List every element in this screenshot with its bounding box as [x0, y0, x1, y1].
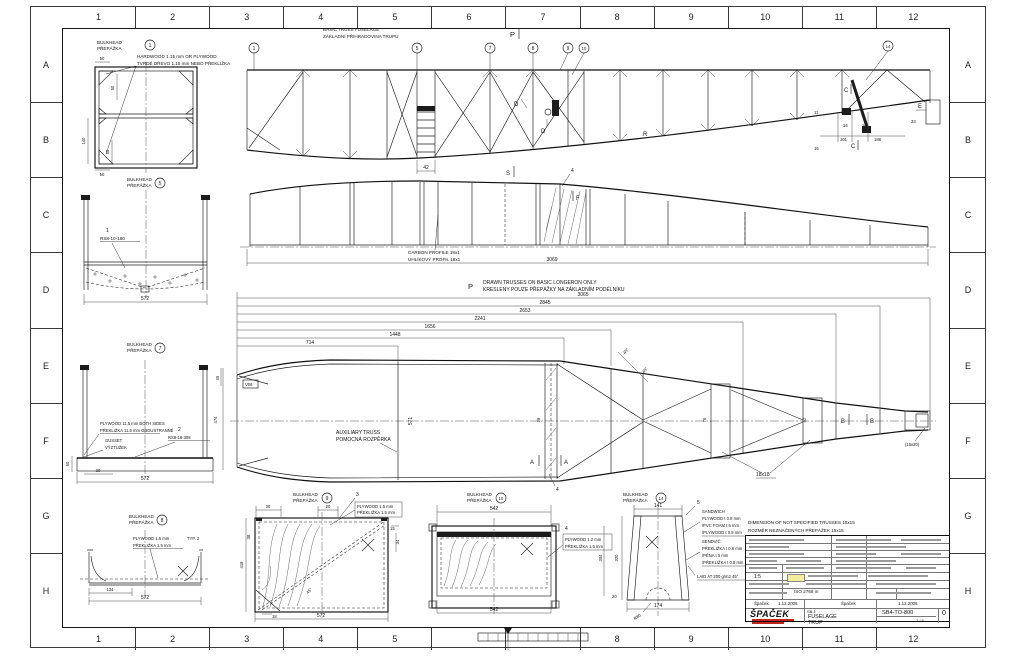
angle-45-2: 45°	[641, 366, 649, 374]
b10-balloon: 10	[499, 496, 504, 501]
svg-text:11: 11	[814, 110, 819, 115]
svg-text:1656: 1656	[424, 324, 435, 330]
svg-text:F: F	[576, 196, 580, 202]
b9-dim-20: 20	[326, 504, 331, 509]
svg-text:DRAWN TRUSSES ON BASIC LONGERO: DRAWN TRUSSES ON BASIC LONGERON ONLY	[483, 280, 597, 286]
b10-dim-542-top: 542	[490, 506, 499, 512]
highlight-cell	[787, 574, 805, 582]
checked-name: Špaček	[841, 601, 856, 606]
svg-text:42: 42	[423, 165, 429, 171]
svg-text:/PŘEKLIŽKA t 0.8 mm: /PŘEKLIŽKA t 0.8 mm	[702, 560, 744, 565]
svg-text:KRESLENY POUZE PŘEPÁŽKY NA ZÁK: KRESLENY POUZE PŘEPÁŽKY NA ZÁKLADNÍM POD…	[483, 285, 625, 293]
b14-title-cz: PŘEPÁŽKA	[623, 496, 648, 503]
detail-mark-e: E	[916, 104, 926, 110]
svg-text:3065: 3065	[577, 292, 588, 298]
svg-text:101: 101	[840, 137, 848, 142]
svg-text:2653: 2653	[519, 308, 530, 314]
b8-note-en: PLYWOOD 1.5 mm	[133, 536, 170, 541]
view1-title-en: BASIC TRUSS FUSELAGE	[323, 27, 379, 32]
bulkhead-5-detail: BULKHEAD PŘEPÁŽKA 5 1 RS8-10-180 572	[81, 177, 210, 305]
blueprint-sheet: 1 2 3 4 5 6 7 8 9 10 11 12 1 2 3 4 5 8 9…	[0, 0, 1024, 659]
note-18x18: 18x18	[722, 440, 810, 478]
svg-text:SENDVIČ: SENDVIČ	[702, 539, 721, 544]
svg-text:1: 1	[253, 46, 256, 52]
wood-panel-hatch	[544, 188, 586, 244]
svg-text:1448: 1448	[389, 332, 400, 338]
b9-wood-grain	[262, 524, 320, 607]
b7-title-cz: PŘEPÁŽKA	[127, 346, 152, 353]
bulkhead-7-detail: BULKHEAD PŘEPÁŽKA 7 PLYWOOD 11.5 mm BOTH…	[65, 342, 223, 484]
b1-dim-140: 140	[81, 137, 86, 145]
svg-text:C: C	[851, 144, 856, 150]
svg-text:C: C	[844, 88, 849, 94]
svg-text:18x18: 18x18	[756, 472, 770, 478]
b9-dim-34: 34	[395, 539, 400, 544]
svg-text:16: 16	[843, 123, 848, 128]
drawn-name: Špaček	[754, 601, 769, 606]
dimension-chain: 3065 2845 2653 2241 1656 1448 714	[237, 292, 930, 411]
svg-text:B: B	[841, 419, 845, 425]
b1-dim-50-mid: 50	[110, 85, 115, 90]
svg-text:ROZMĚR NEZNAČENÝCH PŘEPÁŽEK 15: ROZMĚR NEZNAČENÝCH PŘEPÁŽEK 15x15	[748, 526, 844, 533]
svg-text:S: S	[506, 171, 510, 177]
b1-note-cz: TVRDÉ DŘEVO 1.15 mm NEBO PŘEKLIŽKA	[137, 59, 231, 66]
b5-balloon: 5	[159, 181, 162, 187]
svg-text:LAID AT 200 g/m2 45°: LAID AT 200 g/m2 45°	[697, 574, 739, 579]
svg-text:2241: 2241	[474, 316, 485, 322]
checked-date: 1.12.2006	[898, 601, 918, 606]
svg-text:UHLÍKOVÝ PROFIL 18x1: UHLÍKOVÝ PROFIL 18x1	[408, 256, 461, 262]
svg-text:14: 14	[886, 44, 891, 49]
svg-text:PŘEKLIŽKA t 0.8 mm: PŘEKLIŽKA t 0.8 mm	[702, 546, 743, 551]
item-callout-4: 4	[562, 168, 574, 186]
b9-dim-18: 18	[272, 614, 277, 619]
b7-ref: 2	[178, 427, 181, 433]
svg-text:16: 16	[862, 123, 867, 128]
company-logo: ŠPAČEK	[750, 609, 789, 619]
drawing-title-cz: TRUP	[808, 620, 823, 626]
svg-text:POMOCNÁ ROZPĚRKA: POMOCNÁ ROZPĚRKA	[336, 435, 391, 443]
b9-ref: 3	[356, 492, 359, 498]
view-side-elevation: 4 F CARBON PROFILE 18x1 UHLÍKOVÝ PROFIL …	[240, 168, 936, 266]
balloon-1: 1	[249, 43, 259, 70]
svg-text:8: 8	[532, 46, 535, 52]
svg-text:33: 33	[911, 119, 916, 124]
section-mark-b-left: B	[841, 414, 849, 425]
b9-title-en: BULKHEAD	[293, 492, 318, 497]
b9-title-cz: PŘEPÁŽKA	[293, 496, 318, 503]
b5-title-cz: PŘEPÁŽKA	[127, 181, 152, 188]
drawn-date: 1.12.2006	[778, 601, 798, 606]
b5-part: RS8-10-180	[100, 236, 125, 241]
b7-balloon: 7	[159, 346, 162, 352]
bulkhead-8-detail: BULKHEAD PŘEPÁŽKA 8 PLYWOOD 1.5 mm PŘEKL…	[80, 514, 210, 605]
balloon-8: 8	[528, 43, 538, 70]
centering-ruler	[478, 628, 588, 650]
section-mark-p: P	[510, 29, 519, 39]
revision: 0	[942, 610, 946, 617]
svg-text:714: 714	[306, 340, 315, 346]
b1-dim-50-top: 50	[100, 56, 105, 61]
b1-dim-50-bottom: 50	[100, 172, 105, 177]
svg-text:D: D	[541, 129, 546, 135]
balloon-14: 14	[866, 41, 893, 80]
svg-text:D: D	[514, 102, 519, 108]
svg-text:P: P	[510, 30, 515, 39]
sheet-number: 1 / 5	[916, 618, 924, 623]
section-mark-f: F	[573, 191, 580, 202]
b10-dim-304: 304	[598, 554, 603, 562]
b14-r80: R80	[633, 612, 643, 621]
svg-text:/PVC FOAM t 5 mm: /PVC FOAM t 5 mm	[702, 523, 740, 528]
svg-text:AUXILIARY TRUSS: AUXILIARY TRUSS	[336, 430, 381, 436]
b9-note-cz: PŘEKLIŽKA 1.5 mm	[357, 510, 395, 515]
b7-gusset-en: GUSSET	[105, 438, 123, 443]
b14-title-en: BULKHEAD	[623, 492, 648, 497]
mark-r: R	[643, 132, 648, 138]
b8-title-en: BULKHEAD	[129, 514, 154, 519]
b7-gusset-cz: VÝZTUŽEK	[105, 445, 127, 450]
svg-text:P: P	[468, 282, 473, 291]
svg-text:4: 4	[571, 168, 574, 174]
aux-truss-note: AUXILIARY TRUSS POMOCNÁ ROZPĚRKA	[336, 430, 397, 452]
b9-dim-30: 30	[266, 504, 271, 509]
detail-mark-d1: D	[514, 99, 527, 108]
b14-dim-320: 320	[614, 554, 619, 562]
svg-text:16: 16	[814, 146, 819, 151]
b8-dim-572: 572	[141, 595, 150, 601]
b10-ref: 4	[565, 526, 568, 532]
bulkhead-9-detail: BULKHEAD PŘEPÁŽKA 9 3 PLYWOOD 1.5 mm PŘE…	[239, 492, 402, 622]
svg-text:B: B	[870, 419, 874, 425]
svg-text:2845: 2845	[539, 300, 550, 306]
view-basic-truss-side: BASIC TRUSS FUSELAGE ZÁKLADNÍ PŘÍHRADOVI…	[247, 27, 940, 177]
b7-part: RS8-18-308	[168, 435, 191, 440]
scale-value: 1:5	[754, 574, 761, 580]
bulkhead-10-detail: BULKHEAD PŘEPÁŽKA 10 542 542 4 PLYWOOD 1…	[429, 492, 612, 614]
b7-title-en: BULKHEAD	[127, 342, 152, 347]
b9-dim-15: 15	[390, 526, 395, 531]
balloon-9: 9	[560, 43, 573, 70]
section-mark-b-right: B	[867, 414, 874, 425]
b1-dim-50-low: 50	[105, 149, 110, 154]
company-address-line	[752, 622, 784, 624]
b1-title-cz: PŘEPÁŽKA	[97, 44, 122, 51]
b9-note-en: PLYWOOD 1.5 mm	[357, 504, 394, 509]
b7-dim-572: 572	[141, 476, 150, 482]
b9-balloon: 9	[326, 496, 329, 502]
svg-text:/PLYWOOD t 0.8 mm: /PLYWOOD t 0.8 mm	[702, 530, 742, 535]
b8-title-cz: PŘEPÁŽKA	[129, 518, 154, 525]
tolerance-value: ISO 2768 m	[794, 589, 819, 594]
b5-dim-572: 572	[141, 296, 150, 302]
b7-dim-60: 60	[65, 461, 70, 466]
dim-76: 76	[702, 417, 707, 422]
svg-text:V06: V06	[245, 382, 253, 387]
dim-42: 42	[417, 160, 435, 174]
b10-title-en: BULKHEAD	[467, 492, 492, 497]
b7-dim-474: 474	[213, 416, 218, 424]
b1-note-en: HARDWOOD 1.15 mm OR PLYWOOD	[137, 54, 217, 59]
title-block: 1:5 ISO 2768 m Špaček 1.12.2006 Špaček 1…	[745, 535, 950, 622]
v06-flag: V06	[243, 380, 258, 388]
b10-wood-grain	[444, 540, 496, 587]
carbon-profile-note: CARBON PROFILE 18x1 UHLÍKOVÝ PROFIL 18x1	[408, 215, 461, 262]
svg-text:E: E	[918, 104, 922, 110]
detail-mark-d2: D	[541, 119, 547, 135]
svg-text:PLYWOOD t 0.8 mm: PLYWOOD t 0.8 mm	[702, 516, 741, 521]
svg-text:A: A	[530, 460, 534, 466]
b9-dim-572: 572	[317, 613, 326, 619]
svg-text:7: 7	[489, 46, 492, 52]
b9-dim-418: 418	[239, 561, 244, 569]
b10-title-cz: PŘEPÁŽKA	[467, 496, 492, 503]
general-note-15x15: DIMENSION OF NOT SPECIFIED TRUSSES 15x15…	[748, 520, 855, 533]
b7-note-en: PLYWOOD 11.5 mm BOTH SIDES	[100, 421, 165, 426]
section-mark-a-left: A	[530, 455, 539, 466]
b14-dim-20: 20	[612, 594, 617, 599]
bulkhead-14-detail: BULKHEAD PŘEPÁŽKA 14 141 R80 174 320 20 …	[612, 492, 762, 621]
section-mark-s: S	[506, 166, 514, 177]
dim-52: 52	[802, 417, 807, 422]
view-plan: P DRAWN TRUSSES ON BASIC LONGERON ONLY K…	[230, 280, 936, 493]
angle-45-1: 45°	[622, 347, 630, 355]
company-address-line	[752, 619, 794, 621]
b7-dim-45: 45	[215, 375, 220, 380]
section-mark-c-top: C	[844, 84, 851, 94]
b9-dim-38: 38	[246, 534, 251, 539]
svg-text:A: A	[564, 460, 568, 466]
b10-note-cz: PŘEKLIŽKA 1.5 mm	[565, 544, 603, 549]
b10-dim-542-bottom: 542	[490, 607, 499, 613]
svg-text:/PĚNA t 5 mm: /PĚNA t 5 mm	[702, 553, 729, 558]
b7-dim-30: 30	[96, 468, 101, 473]
dim-571: 571	[408, 417, 414, 426]
bulkhead-1-detail: BULKHEAD PŘEPÁŽKA 1 HARDWOOD 1.15 mm OR …	[81, 40, 231, 177]
svg-text:188: 188	[874, 137, 882, 142]
dim-28: 28	[536, 417, 541, 422]
b7-note-cz: PŘEKLIŽKA 11.5 mm OBOUSTRANNĚ	[100, 428, 174, 433]
svg-text:5: 5	[416, 46, 419, 52]
b14-dim-174: 174	[654, 603, 663, 609]
svg-text:9: 9	[567, 46, 570, 52]
b5-title-en: BULKHEAD	[127, 177, 152, 182]
b8-dim-134: 134	[107, 587, 115, 592]
svg-text:4: 4	[556, 487, 559, 493]
b8-typ: TYP. 2	[187, 536, 200, 541]
svg-text:(15x20): (15x20)	[905, 442, 920, 447]
balloon-5: 5	[412, 43, 422, 70]
dim-3069: 3069	[247, 249, 928, 266]
b1-balloon: 1	[149, 43, 152, 49]
balloon-7: 7	[485, 43, 495, 70]
svg-text:DIMENSION OF NOT SPECIFIED TRU: DIMENSION OF NOT SPECIFIED TRUSSES 15x15	[748, 520, 855, 525]
svg-text:CARBON PROFILE 18x1: CARBON PROFILE 18x1	[408, 250, 460, 255]
section-mark-a-right: A	[561, 455, 568, 466]
view1-title-cz: ZÁKLADNÍ PŘÍHRADOVINA TRUPU	[323, 32, 398, 39]
svg-text:SANDWICH: SANDWICH	[702, 509, 725, 514]
drawing-number: SB4-TO-800	[882, 610, 913, 616]
b1-title-en: BULKHEAD	[97, 40, 122, 45]
b14-ref: 5	[697, 500, 700, 506]
b8-note-cz: PŘEKLIŽKA 1.5 mm	[133, 543, 171, 548]
svg-text:10: 10	[582, 46, 587, 51]
b14-balloon: 14	[659, 496, 664, 501]
b5-ref: 1	[106, 228, 109, 234]
plan-note: P DRAWN TRUSSES ON BASIC LONGERON ONLY K…	[468, 280, 625, 293]
b8-balloon: 8	[161, 518, 164, 524]
b9-angle-45: 45°	[305, 587, 313, 595]
svg-text:3069: 3069	[546, 257, 557, 263]
b10-note-en: PLYWOOD 1.2 mm	[565, 537, 602, 542]
